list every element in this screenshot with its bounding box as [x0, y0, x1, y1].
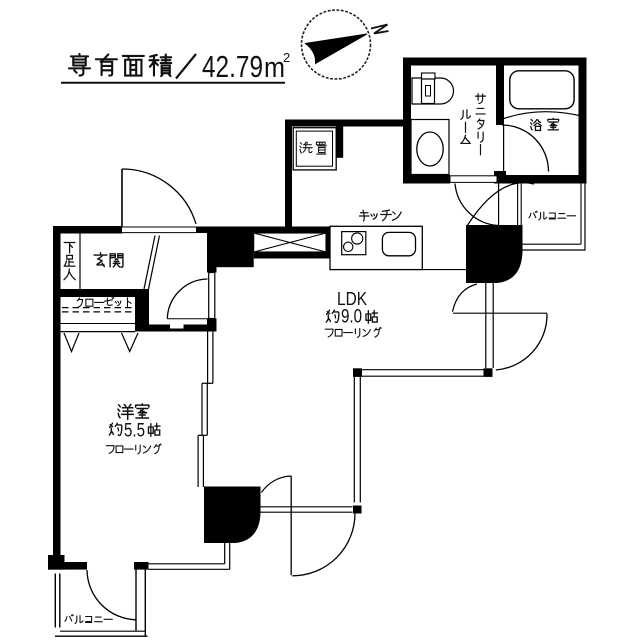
svg-text:42.79: 42.79 — [202, 49, 263, 84]
svg-text:2: 2 — [283, 50, 290, 65]
svg-text:m: m — [264, 52, 285, 84]
svg-text:5.5: 5.5 — [124, 421, 145, 442]
svg-text:9.0: 9.0 — [341, 307, 362, 328]
